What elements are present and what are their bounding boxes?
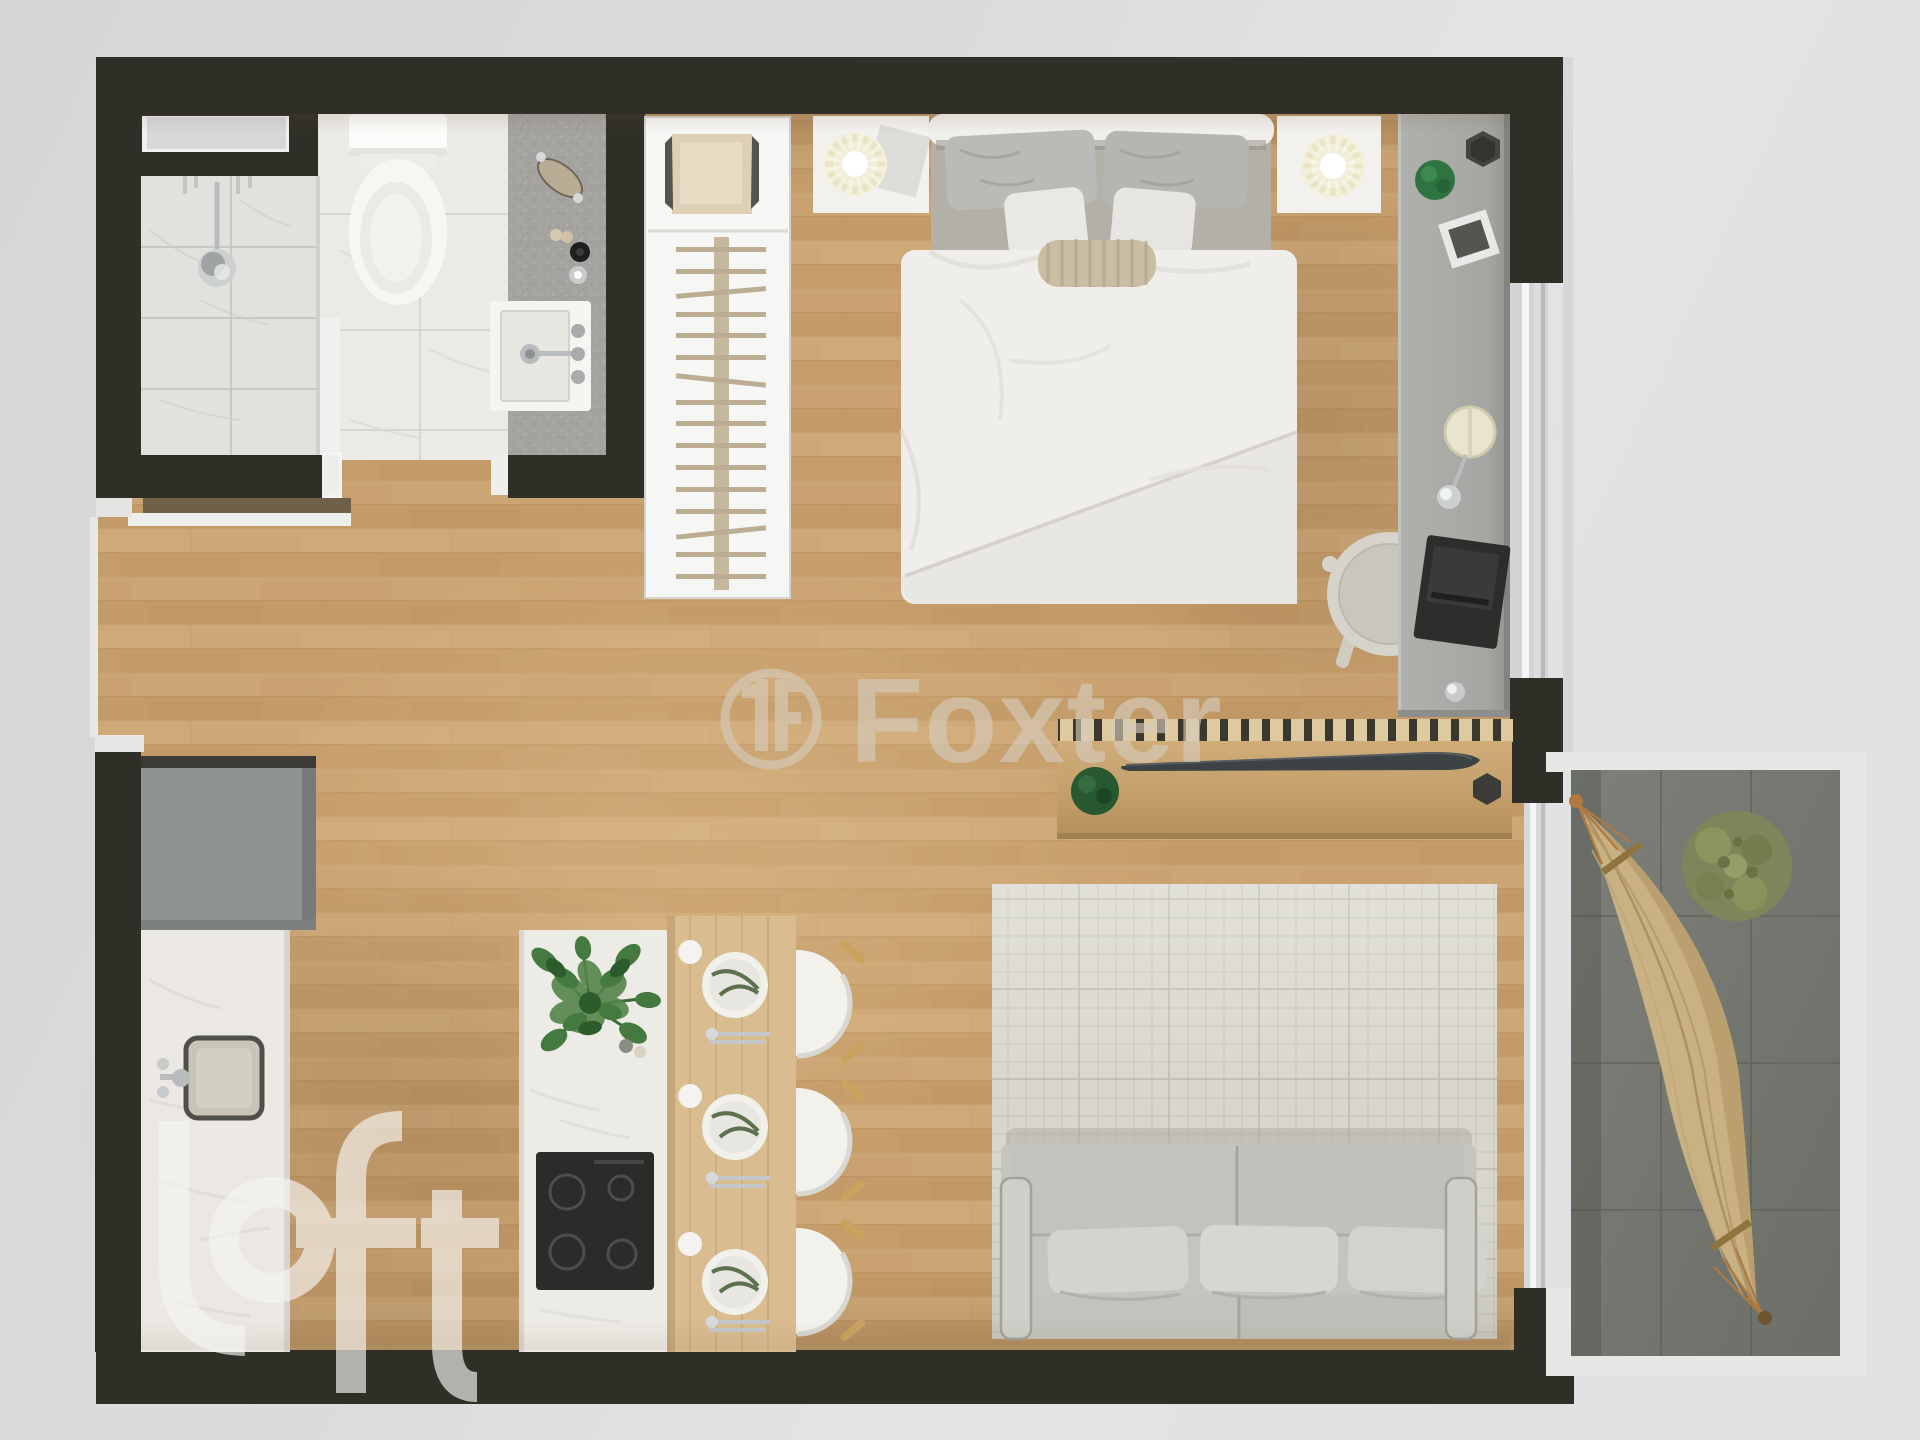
svg-text:Foxter: Foxter [850, 654, 1223, 788]
